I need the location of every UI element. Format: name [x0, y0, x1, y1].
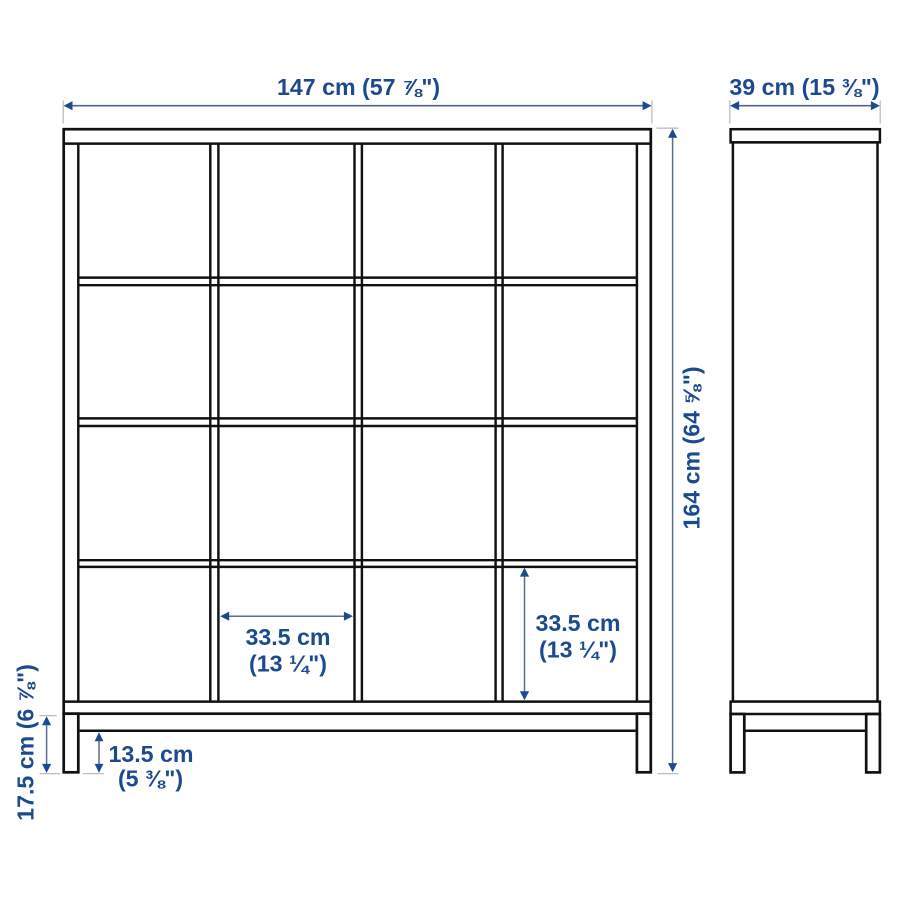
svg-text:164 cm (64 ⅝"): 164 cm (64 ⅝"): [679, 366, 705, 529]
svg-text:(5 ⅜"): (5 ⅜"): [118, 766, 183, 792]
svg-text:17.5 cm (6 ⅞"): 17.5 cm (6 ⅞"): [12, 664, 38, 821]
svg-text:33.5 cm: 33.5 cm: [535, 610, 620, 636]
svg-text:13.5 cm: 13.5 cm: [108, 741, 193, 767]
svg-text:39 cm (15 ⅜"): 39 cm (15 ⅜"): [729, 74, 879, 100]
svg-text:33.5 cm: 33.5 cm: [245, 624, 330, 650]
svg-text:(13 ¼"): (13 ¼"): [249, 650, 327, 676]
svg-text:(13 ¼"): (13 ¼"): [539, 637, 617, 663]
svg-text:147 cm (57 ⅞"): 147 cm (57 ⅞"): [277, 74, 440, 100]
